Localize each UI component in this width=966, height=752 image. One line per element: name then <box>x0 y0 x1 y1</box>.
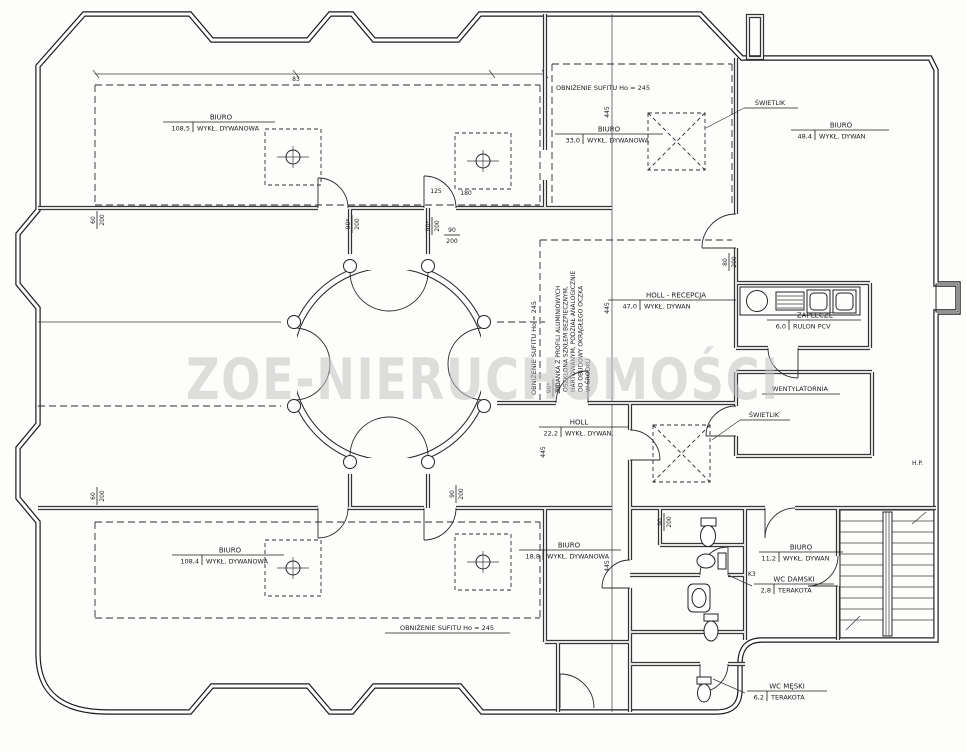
room-name: BIURO <box>219 547 242 555</box>
dim: 200 <box>434 220 441 232</box>
dim: 200 <box>666 516 673 528</box>
room-name: HOLL - RECEPCJA <box>646 292 706 300</box>
dim: 80 <box>722 258 729 266</box>
skylight-label-top: ŚWIETLIK <box>706 98 798 128</box>
ceiling-note-top: OBNIŻENIE SUFITU Ho = 245 <box>556 83 650 92</box>
dim: 90* <box>345 219 352 230</box>
dim: 445 <box>540 446 547 458</box>
watermark: ZOE-NIERUCHOMOŚCI <box>186 345 780 413</box>
dim: 200 <box>99 214 106 226</box>
room-label-wc-meski: WC MĘSKI 6,2 TERAKOTA <box>713 679 827 702</box>
room-floor: WYKŁ. DYWANOWA <box>206 558 269 566</box>
dim: 125 <box>430 188 442 195</box>
washbasin <box>688 584 710 612</box>
room-floor: RULON PCV <box>793 323 831 331</box>
dim: 445 <box>604 560 611 572</box>
room-label-holl: HOLL 22,2 WYKŁ. DYWAN. <box>539 419 629 438</box>
ceiling-note-bottom: OBNIŻENIE SUFITU Ho = 245 <box>400 623 494 632</box>
vent-room-text: WENTYLATORNIA <box>772 385 828 393</box>
room-area: 47,0 <box>623 303 637 311</box>
room-label-holl-recepcja: HOLL - RECEPCJA 47,0 WYKŁ. DYWAN <box>608 292 736 311</box>
room-label-biuro-topmid: BIURO 33,0 WYKŁ. DYWANOWA <box>555 126 663 145</box>
dim: 445 <box>604 302 611 314</box>
room-floor: WYKŁ. DYWAN. <box>565 430 614 438</box>
dim: 90 <box>448 227 456 234</box>
room-label-biuro-topleft: BIURO 108,5 WYKŁ. DYWANOWA <box>163 114 275 133</box>
dim: 200 <box>458 488 465 500</box>
dim: 200 <box>731 256 738 268</box>
dim: 180 <box>460 190 472 197</box>
room-area: 6,0 <box>776 323 786 331</box>
room-area: 11,2 <box>762 555 776 563</box>
room-name: BIURO <box>598 126 621 134</box>
room-floor: WYKŁ. DYWAN <box>644 303 691 311</box>
dim: 90 <box>449 490 456 498</box>
room-name: BIURO <box>830 122 853 130</box>
room-area: 48,4 <box>798 133 812 141</box>
room-name: WC DAMSKI <box>773 576 814 584</box>
room-area: 22,2 <box>544 430 558 438</box>
room-floor: TERAKOTA <box>770 694 805 702</box>
room-label-biuro-right: BIURO 11,2 WYKŁ. DYWAN <box>759 544 843 563</box>
room-label-zaplecze: ZAPLECZE 6,0 RULON PCV <box>767 312 861 331</box>
dim: H.P. <box>912 460 923 467</box>
room-floor: WYKŁ. DYWAN <box>819 133 866 141</box>
room-name: BIURO <box>558 542 581 550</box>
staircase <box>840 510 934 638</box>
room-floor: WYKŁ. DYWANOWA <box>197 125 260 133</box>
dim: 200 <box>354 218 361 230</box>
room-floor: TERAKOTA <box>777 587 812 595</box>
room-area: 6,2 <box>754 694 764 702</box>
toilet <box>697 553 726 569</box>
room-area: 108,4 <box>180 558 199 566</box>
floorplan-scan: BIURO 108,5 WYKŁ. DYWANOWA BIURO 33,0 WY… <box>0 0 966 752</box>
room-name: BIURO <box>790 544 813 552</box>
dim: 60 <box>90 216 97 224</box>
floorplan-drawing: BIURO 108,5 WYKŁ. DYWANOWA BIURO 33,0 WY… <box>0 0 966 752</box>
room-name: WC MĘSKI <box>769 683 805 691</box>
skylight-label-mid: ŚWIETLIK <box>712 410 790 440</box>
room-area: 33,0 <box>566 137 580 145</box>
toilet <box>704 614 718 641</box>
dim: K3 <box>748 571 756 578</box>
dim: 200 <box>99 490 106 502</box>
dim: 90 <box>657 518 664 526</box>
room-name: BIURO <box>210 114 233 122</box>
toilet <box>697 677 711 702</box>
room-name: ZAPLECZE <box>797 312 833 320</box>
room-floor: WYKŁ. DYWANOWA <box>547 553 610 561</box>
toilet <box>701 518 717 547</box>
dim: 83 <box>292 76 300 83</box>
room-area: 108,5 <box>171 125 190 133</box>
room-label-biuro-bottomleft: BIURO 108,4 WYKŁ. DYWANOWA <box>172 547 284 566</box>
room-floor: WYKŁ. DYWAN <box>783 555 830 563</box>
room-area: 18,8 <box>526 553 540 561</box>
room-name: HOLL <box>570 419 589 427</box>
room-floor: WYKŁ. DYWANOWA <box>587 137 650 145</box>
dim: 60 <box>90 492 97 500</box>
room-label-biuro-topright: BIURO 48,4 WYKŁ. DYWAN <box>791 122 889 141</box>
room-label-biuro-bottommid: BIURO 18,8 WYKŁ. DYWANOWA <box>519 542 621 561</box>
skylight-text: ŚWIETLIK <box>755 98 786 107</box>
dim: 200 <box>446 238 458 245</box>
dim: 90* <box>425 221 432 232</box>
dim: 445 <box>604 106 611 118</box>
room-area: 2,8 <box>761 587 771 595</box>
